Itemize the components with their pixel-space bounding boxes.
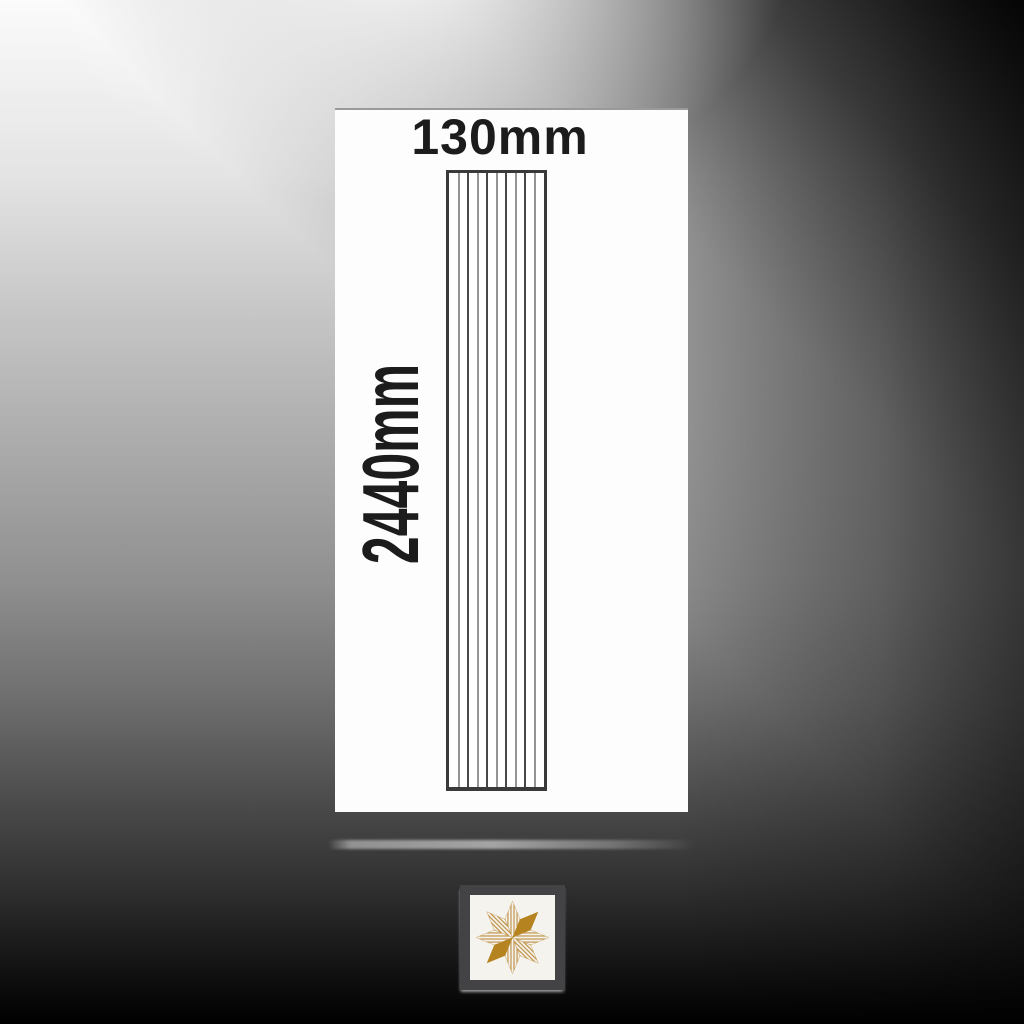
- panel-slat-line: [467, 173, 469, 787]
- height-dimension-label: 2440mm: [345, 364, 438, 564]
- card-reflection: [328, 840, 696, 849]
- panel-slat-line: [477, 173, 479, 787]
- panel-slat-line: [458, 173, 460, 787]
- panel-slat-line: [524, 173, 526, 787]
- brand-logo: [460, 885, 565, 990]
- eight-point-star-icon: [472, 897, 553, 978]
- panel-slat-line: [486, 173, 488, 787]
- panel-slat-line: [505, 173, 507, 787]
- width-dimension-label: 130mm: [335, 108, 665, 166]
- panel-slat-line: [534, 173, 536, 787]
- product-diagram-card: 130mm 2440mm: [335, 108, 688, 812]
- fluted-panel: [446, 170, 547, 791]
- panel-slat-line: [496, 173, 498, 787]
- panel-slat-line: [515, 173, 517, 787]
